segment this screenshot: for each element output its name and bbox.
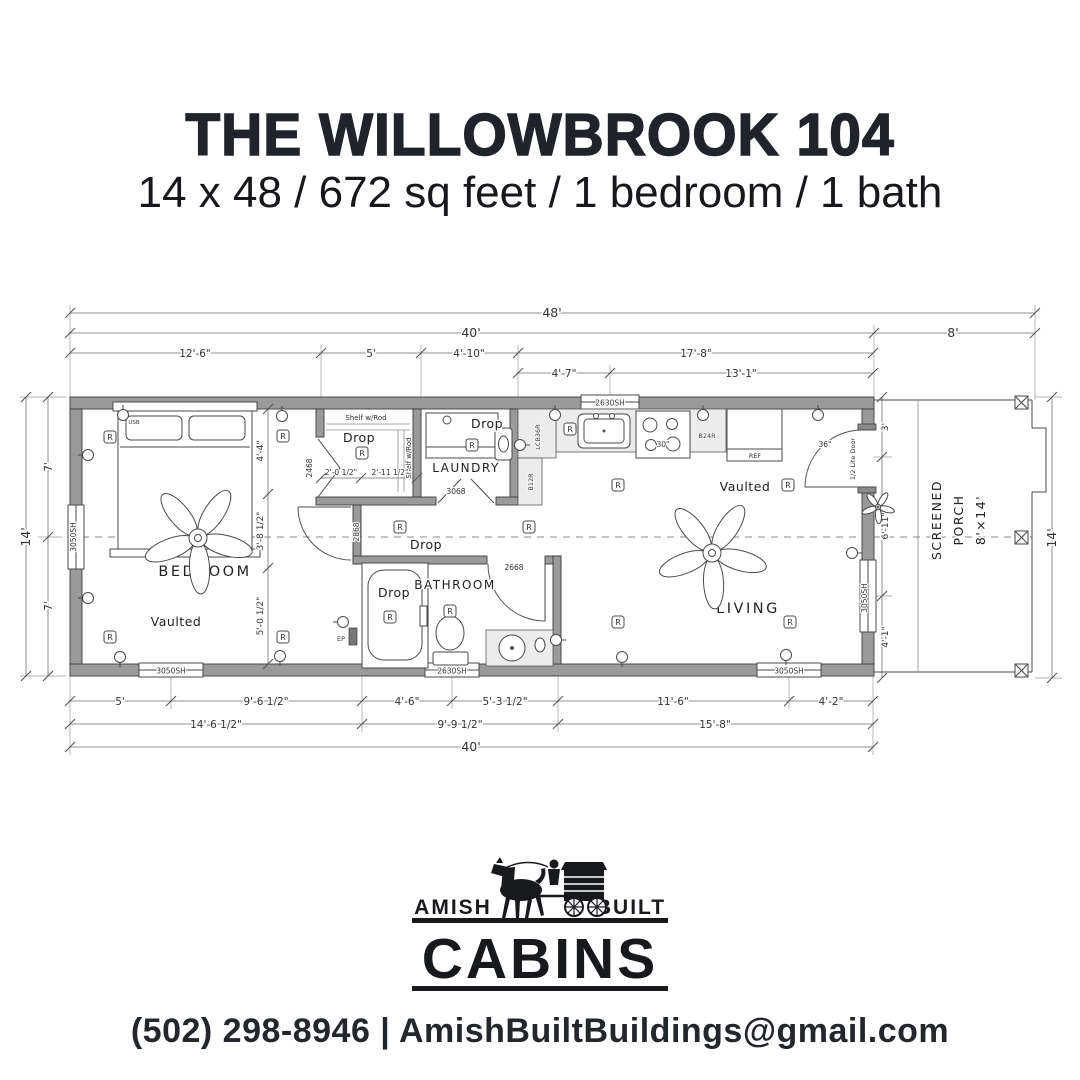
svg-text:B24R: B24R <box>698 432 716 440</box>
svg-text:EP: EP <box>337 635 345 643</box>
svg-text:4'-7": 4'-7" <box>552 368 577 380</box>
closet-shelf: Shelf w/Rod Shelf w/Rod <box>326 414 413 492</box>
svg-text:REF: REF <box>749 452 762 460</box>
svg-text:30": 30" <box>657 440 670 449</box>
svg-text:4'-1": 4'-1" <box>881 626 891 647</box>
logo-cabins-text: CABINS <box>422 927 659 991</box>
svg-text:5': 5' <box>115 696 125 708</box>
svg-text:8'×14': 8'×14' <box>973 495 988 545</box>
svg-text:SCREENED: SCREENED <box>929 480 944 560</box>
svg-text:R: R <box>107 633 113 642</box>
svg-text:PORCH: PORCH <box>951 494 966 545</box>
svg-text:12'-6": 12'-6" <box>179 348 211 360</box>
svg-text:Drop: Drop <box>378 585 410 600</box>
right-wall-window: 3050SH <box>860 560 876 632</box>
bedroom-door: 2868 <box>298 507 361 560</box>
svg-text:R: R <box>567 425 573 434</box>
svg-text:4'-10": 4'-10" <box>453 348 485 360</box>
svg-text:R: R <box>280 633 286 642</box>
svg-text:5'-0 1/2": 5'-0 1/2" <box>256 597 266 636</box>
svg-text:R: R <box>469 441 475 450</box>
svg-text:3050SH: 3050SH <box>860 583 869 613</box>
recessed-light-marker: R <box>782 479 794 491</box>
bedroom-bottom-window: 3050SH <box>139 663 203 677</box>
svg-text:2'-11 1/2": 2'-11 1/2" <box>372 468 409 477</box>
svg-text:7': 7' <box>43 462 55 472</box>
svg-text:USB: USB <box>128 420 140 426</box>
svg-text:Drop: Drop <box>471 416 503 431</box>
toilet <box>433 616 468 665</box>
svg-text:LCB36R: LCB36R <box>534 424 542 450</box>
laundry-tub <box>495 428 512 460</box>
porch-post-icon <box>1015 664 1028 677</box>
svg-text:R: R <box>397 523 403 532</box>
recessed-light-marker: R <box>277 631 289 643</box>
front-door: 36" 1/2 Lite Door <box>805 430 862 487</box>
recessed-light-marker: R <box>444 605 456 617</box>
svg-text:8': 8' <box>947 325 958 340</box>
svg-text:R: R <box>387 613 393 622</box>
svg-text:R: R <box>787 618 793 627</box>
svg-text:Vaulted: Vaulted <box>720 479 771 494</box>
svg-text:3050SH: 3050SH <box>774 667 804 676</box>
recessed-light-marker: R <box>612 479 624 491</box>
bathroom-door: 2668 <box>488 563 545 621</box>
svg-text:2630SH: 2630SH <box>595 399 625 408</box>
outlet-icon <box>551 635 567 646</box>
svg-text:3068: 3068 <box>446 487 465 496</box>
ceiling-fan-icon <box>656 501 769 610</box>
recessed-light-marker: R <box>394 521 406 533</box>
recessed-light-marker: R <box>523 521 535 533</box>
svg-text:5'-3 1/2": 5'-3 1/2" <box>482 696 527 708</box>
svg-text:R: R <box>526 523 532 532</box>
svg-text:R: R <box>280 432 286 441</box>
svg-text:R: R <box>615 618 621 627</box>
svg-text:R: R <box>785 481 791 490</box>
svg-text:Drop: Drop <box>410 537 442 552</box>
kitchen-window: 2630SH <box>581 395 639 409</box>
recessed-light-marker: R <box>384 611 396 623</box>
recessed-light-marker: R <box>104 631 116 643</box>
svg-text:R: R <box>615 481 621 490</box>
svg-text:6'-11": 6'-11" <box>881 512 891 539</box>
svg-text:R: R <box>447 607 453 616</box>
recessed-light-marker: R <box>277 430 289 442</box>
recessed-light-marker: R <box>612 616 624 628</box>
outlet-icon <box>847 548 863 559</box>
recessed-light-marker: R <box>784 616 796 628</box>
porch-post-icon <box>1015 396 1028 409</box>
floor-plan-poster: THE WILLOWBROOK 104 14 x 48 / 672 sq fee… <box>0 0 1080 1080</box>
porch-post-icon <box>1015 531 1028 544</box>
svg-text:48': 48' <box>542 305 561 320</box>
svg-text:2630SH: 2630SH <box>437 667 467 676</box>
laundry-door: 3068 <box>438 479 494 503</box>
svg-text:17'-8": 17'-8" <box>680 348 712 360</box>
recessed-light-marker: R <box>104 431 116 443</box>
svg-text:3050SH: 3050SH <box>69 522 78 552</box>
amish-built-cabins-logo: AMISH BUILT <box>400 850 680 1000</box>
svg-text:13'-1": 13'-1" <box>725 368 757 380</box>
recessed-light-marker: R <box>466 439 478 451</box>
svg-text:2'-0 1/2": 2'-0 1/2" <box>325 468 357 477</box>
svg-text:B12R: B12R <box>527 473 535 491</box>
living-bottom-window: 3050SH <box>757 663 821 677</box>
logo-divider-bottom <box>412 986 668 991</box>
svg-text:5': 5' <box>366 348 376 360</box>
outlet-icon <box>333 617 349 628</box>
refrigerator: REF <box>727 409 782 461</box>
screened-porch: SCREENED PORCH 8'×14' <box>874 396 1046 677</box>
svg-text:R: R <box>359 449 365 458</box>
svg-text:3'-8 1/2": 3'-8 1/2" <box>256 512 266 551</box>
svg-text:R: R <box>107 433 113 442</box>
svg-text:LIVING: LIVING <box>716 601 780 617</box>
svg-text:LAUNDRY: LAUNDRY <box>432 461 500 475</box>
horse-buggy-icon <box>491 857 607 919</box>
svg-text:2668: 2668 <box>504 563 523 572</box>
svg-text:11'-6": 11'-6" <box>657 696 689 708</box>
left-wall-window: 3050SH <box>68 505 84 569</box>
logo-divider-top <box>412 918 668 923</box>
svg-text:3050SH: 3050SH <box>156 667 186 676</box>
svg-text:4'-4": 4'-4" <box>256 440 266 461</box>
svg-text:40': 40' <box>461 325 480 340</box>
recessed-light-marker: R <box>356 447 368 459</box>
kitchen-sink <box>578 414 630 449</box>
svg-text:14': 14' <box>1044 528 1059 547</box>
svg-text:14'-6 1/2": 14'-6 1/2" <box>190 719 242 731</box>
svg-text:4'-6": 4'-6" <box>395 696 420 708</box>
logo-amish-text: AMISH <box>414 896 492 919</box>
svg-text:7': 7' <box>43 601 55 611</box>
vanity <box>486 630 553 666</box>
svg-text:Shelf w/Rod: Shelf w/Rod <box>345 414 386 422</box>
svg-text:1/2 Lite Door: 1/2 Lite Door <box>849 438 857 481</box>
stove: 30" <box>636 411 690 458</box>
electrical-panel: EP <box>337 628 357 645</box>
svg-text:9'-6 1/2": 9'-6 1/2" <box>243 696 288 708</box>
svg-text:4'-2": 4'-2" <box>819 696 844 708</box>
svg-text:Drop: Drop <box>343 430 375 445</box>
svg-text:36": 36" <box>819 440 832 449</box>
svg-text:2468: 2468 <box>305 458 314 477</box>
svg-text:BATHROOM: BATHROOM <box>414 578 495 592</box>
svg-text:15'-8": 15'-8" <box>699 719 731 731</box>
svg-text:14': 14' <box>18 527 33 546</box>
svg-text:2868: 2868 <box>352 522 361 541</box>
contact-info: (502) 298-8946 | AmishBuiltBuildings@gma… <box>0 1012 1080 1051</box>
svg-text:40': 40' <box>461 739 480 754</box>
recessed-light-marker: R <box>564 423 576 435</box>
svg-text:9'-9 1/2": 9'-9 1/2" <box>437 719 482 731</box>
svg-text:3': 3' <box>881 423 891 431</box>
svg-text:Vaulted: Vaulted <box>151 614 202 629</box>
